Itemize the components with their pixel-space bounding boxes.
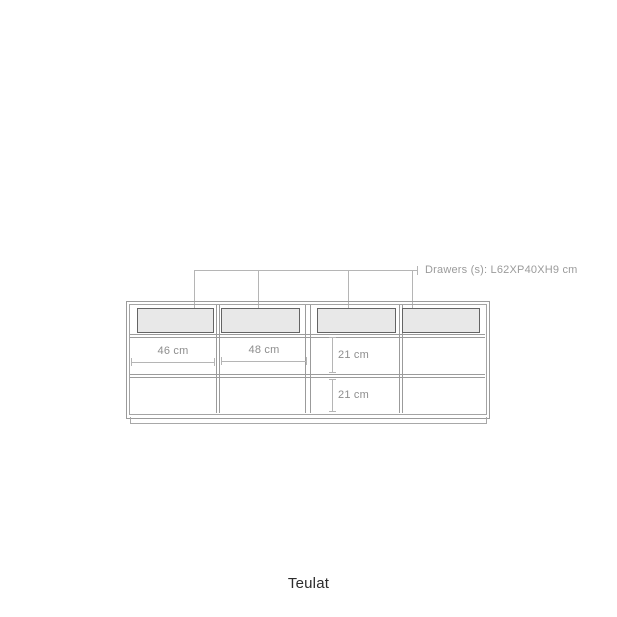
dimension-col1-tick-right [214, 358, 215, 366]
callout-leader-line [194, 270, 418, 271]
brand-name: Teulat [0, 575, 617, 593]
dimension-col2-label: 48 cm [221, 344, 307, 357]
shelf-divider-line-outer [130, 374, 485, 375]
dimension-row1-label: 21 cm [338, 349, 369, 362]
dimension-col2-tick-right [306, 357, 307, 365]
dimension-row1-line [332, 337, 333, 373]
dimension-row1-tick-bottom [329, 372, 336, 373]
dimension-row2-line [332, 379, 333, 412]
dimension-col1-label: 46 cm [131, 345, 215, 358]
dimension-row2-label: 21 cm [338, 389, 369, 402]
drawer-2 [221, 308, 300, 333]
column-divider-2-outer [399, 305, 400, 413]
cabinet-base [130, 417, 487, 424]
drawer-3 [317, 308, 396, 333]
drawer-4 [402, 308, 480, 333]
dimension-row2-tick-top [329, 379, 336, 380]
dimension-col2-line [221, 361, 307, 362]
dimension-col1-tick-left [131, 358, 132, 366]
dimension-col2-tick-left [221, 357, 222, 365]
callout-end-tick [417, 266, 418, 275]
module-wall-right [310, 305, 311, 413]
drawer-row-bottom-line-inner [130, 337, 485, 338]
page: Drawers (s): L62XP40XH9 cm 46 cm 48 cm [0, 0, 617, 617]
furniture-diagram: Drawers (s): L62XP40XH9 cm 46 cm 48 cm [0, 0, 617, 617]
column-divider-1-inner [219, 305, 220, 413]
dimension-row2-tick-bottom [329, 411, 336, 412]
dimension-col1-line [131, 362, 215, 363]
drawer-1 [137, 308, 214, 333]
dimension-row1-tick-top [329, 337, 336, 338]
drawer-row-bottom-line-outer [130, 334, 485, 335]
column-divider-1-outer [216, 305, 217, 413]
drawers-spec-label: Drawers (s): L62XP40XH9 cm [425, 264, 578, 277]
shelf-divider-line-inner [130, 377, 485, 378]
